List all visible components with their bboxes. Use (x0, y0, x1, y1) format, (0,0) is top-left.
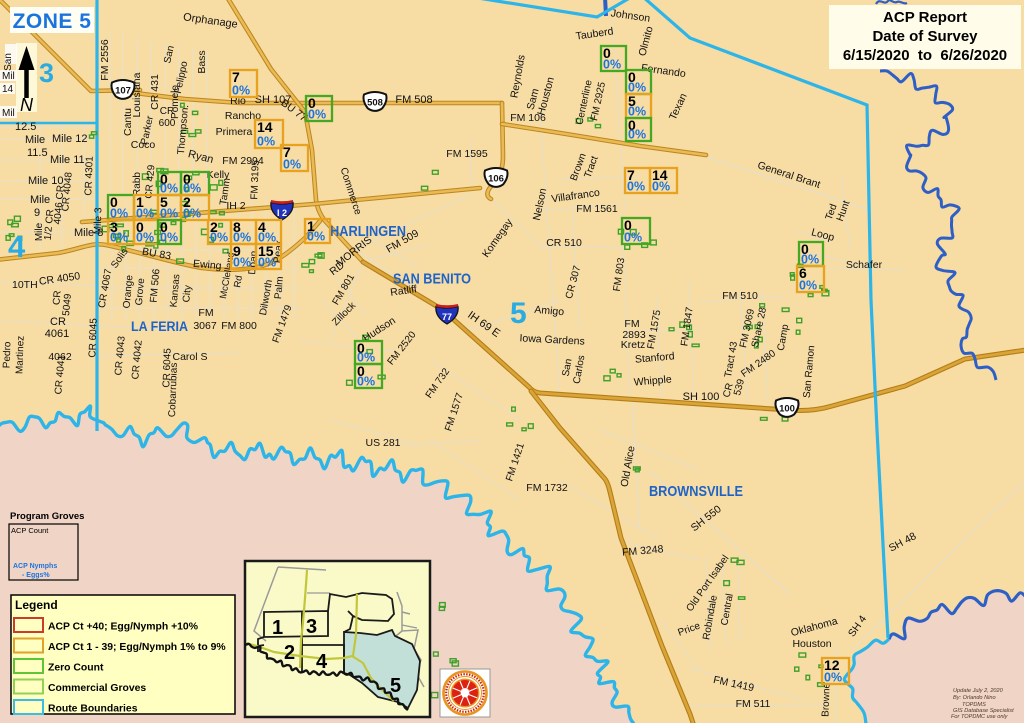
svg-text:77: 77 (442, 312, 452, 322)
svg-text:0%: 0% (110, 231, 128, 245)
svg-text:0%: 0% (258, 256, 276, 270)
svg-text:Primera: Primera (216, 126, 253, 138)
svg-text:Bass: Bass (196, 50, 208, 73)
svg-text:508: 508 (367, 98, 383, 109)
svg-text:FM 1561: FM 1561 (576, 203, 618, 215)
svg-text:3: 3 (306, 616, 317, 638)
svg-text:CR 510: CR 510 (546, 237, 582, 249)
svg-text:Houston: Houston (792, 638, 831, 650)
svg-text:106: 106 (488, 174, 504, 185)
svg-text:CR: CR (160, 106, 174, 117)
svg-text:0%: 0% (160, 231, 178, 245)
svg-text:CR: CR (50, 316, 66, 328)
svg-text:0%: 0% (799, 279, 817, 293)
svg-text:ACP Ct +40; Egg/Nymph +10%: ACP Ct +40; Egg/Nymph +10% (48, 622, 198, 633)
svg-text:Legend: Legend (15, 598, 58, 612)
svg-text:100: 100 (779, 404, 795, 415)
svg-text:Coco: Coco (131, 139, 156, 151)
svg-text:Ewing: Ewing (192, 258, 222, 272)
svg-text:HARLINGEN: HARLINGEN (330, 223, 406, 240)
svg-text:US 281: US 281 (365, 437, 400, 449)
svg-text:Mile 11: Mile 11 (50, 154, 85, 166)
svg-text:Schafer: Schafer (846, 259, 883, 271)
svg-text:0%: 0% (232, 84, 250, 98)
svg-text:0%: 0% (624, 231, 642, 245)
svg-text:0%: 0% (603, 58, 621, 72)
svg-text:BROWNSVILLE: BROWNSVILLE (649, 483, 743, 500)
svg-text:0%: 0% (628, 128, 646, 142)
svg-text:9: 9 (34, 207, 40, 219)
svg-text:FM 508: FM 508 (395, 94, 432, 106)
svg-text:Mile: Mile (30, 194, 50, 206)
svg-text:0%: 0% (257, 135, 275, 149)
svg-text:ACP Nymphs: ACP Nymphs (13, 563, 57, 570)
svg-text:2: 2 (284, 642, 295, 664)
svg-text:CR 6045: CR 6045 (161, 348, 173, 388)
svg-text:Pedro: Pedro (2, 341, 14, 368)
svg-text:4: 4 (8, 229, 26, 264)
svg-text:Rd: Rd (232, 275, 245, 289)
svg-text:Kretz: Kretz (621, 339, 646, 351)
svg-text:ACP Count: ACP Count (11, 526, 49, 535)
svg-text:4: 4 (316, 651, 328, 673)
svg-text:10TH: 10TH (12, 279, 38, 291)
svg-text:Rabb: Rabb (132, 172, 143, 196)
svg-text:0%: 0% (233, 256, 251, 270)
svg-text:FM: FM (198, 307, 213, 319)
svg-text:FM 2556: FM 2556 (99, 39, 111, 81)
svg-text:Mile 12: Mile 12 (52, 133, 87, 145)
svg-text:6/15/2020 to 6/26/2020: 6/15/2020 to 6/26/2020 (843, 47, 1007, 64)
svg-text:0%: 0% (307, 230, 325, 244)
svg-text:LA FERIA: LA FERIA (131, 319, 188, 334)
svg-text:San: San (3, 53, 14, 71)
svg-text:0%: 0% (627, 180, 645, 194)
svg-text:107: 107 (115, 86, 131, 97)
svg-text:- Eggs%: - Eggs% (22, 572, 50, 579)
svg-text:0%: 0% (357, 375, 375, 389)
svg-text:12.5: 12.5 (15, 121, 36, 133)
svg-text:0%: 0% (136, 231, 154, 245)
svg-text:11.5: 11.5 (27, 147, 48, 159)
svg-text:IH 2: IH 2 (226, 200, 245, 212)
svg-text:600: 600 (159, 118, 176, 129)
svg-text:FM 2994: FM 2994 (222, 155, 264, 167)
svg-text:I 2: I 2 (277, 208, 287, 218)
svg-text:Zero Count: Zero Count (48, 663, 104, 674)
svg-text:ZONE 5: ZONE 5 (13, 10, 92, 33)
svg-text:0%: 0% (283, 158, 301, 172)
svg-text:By: Orlando Nino: By: Orlando Nino (953, 695, 996, 701)
svg-text:Program Groves: Program Groves (10, 511, 84, 522)
svg-text:0%: 0% (308, 108, 326, 122)
svg-text:0%: 0% (652, 180, 670, 194)
svg-text:4061: 4061 (45, 328, 69, 340)
svg-text:For TOPDMC use only: For TOPDMC use only (951, 714, 1009, 720)
svg-text:Date of Survey: Date of Survey (872, 28, 978, 45)
svg-text:Mil: Mil (2, 71, 15, 82)
svg-text:CR 431: CR 431 (149, 74, 161, 110)
svg-text:Palm: Palm (273, 276, 286, 300)
svg-text:Commercial Groves: Commercial Groves (48, 683, 146, 694)
svg-text:FM 510: FM 510 (722, 290, 758, 302)
svg-text:14: 14 (2, 84, 14, 95)
svg-text:Mile: Mile (25, 134, 45, 146)
svg-text:SAN BENITO: SAN BENITO (393, 271, 471, 288)
svg-text:3067: 3067 (193, 320, 217, 332)
svg-text:CR 6045: CR 6045 (87, 318, 99, 358)
svg-text:City: City (181, 285, 193, 303)
svg-text:Browne: Browne (820, 682, 832, 717)
svg-text:Update July 2, 2020: Update July 2, 2020 (953, 688, 1004, 694)
svg-text:ACP Ct 1 - 39; Egg/Nymph 1% to: ACP Ct 1 - 39; Egg/Nymph 1% to 9% (48, 642, 226, 653)
svg-text:SH 100: SH 100 (683, 391, 720, 403)
svg-text:FM 1732: FM 1732 (526, 482, 568, 494)
svg-text:5049: 5049 (61, 293, 74, 317)
svg-text:ACP Report: ACP Report (883, 9, 967, 26)
svg-text:Cantu: Cantu (122, 108, 134, 136)
svg-text:CR 4301: CR 4301 (83, 156, 95, 196)
svg-text:FM 511: FM 511 (736, 698, 771, 710)
svg-text:5: 5 (390, 675, 401, 697)
svg-text:0%: 0% (183, 207, 201, 221)
svg-text:5: 5 (510, 297, 527, 330)
svg-text:N: N (20, 95, 34, 115)
svg-text:FM 1595: FM 1595 (446, 148, 488, 160)
svg-text:3: 3 (39, 58, 54, 88)
svg-text:0%: 0% (210, 231, 228, 245)
svg-text:Mile 3: Mile 3 (93, 207, 105, 234)
svg-text:0%: 0% (824, 671, 842, 685)
svg-text:14: 14 (257, 119, 273, 135)
svg-text:FM 800: FM 800 (221, 320, 257, 332)
svg-text:1: 1 (272, 617, 283, 639)
svg-text:Mil: Mil (2, 108, 15, 119)
svg-text:Martinez: Martinez (14, 336, 26, 375)
svg-text:Mile: Mile (34, 222, 45, 241)
svg-text:Carol S: Carol S (172, 351, 207, 363)
svg-text:Route Boundaries: Route Boundaries (48, 704, 138, 715)
